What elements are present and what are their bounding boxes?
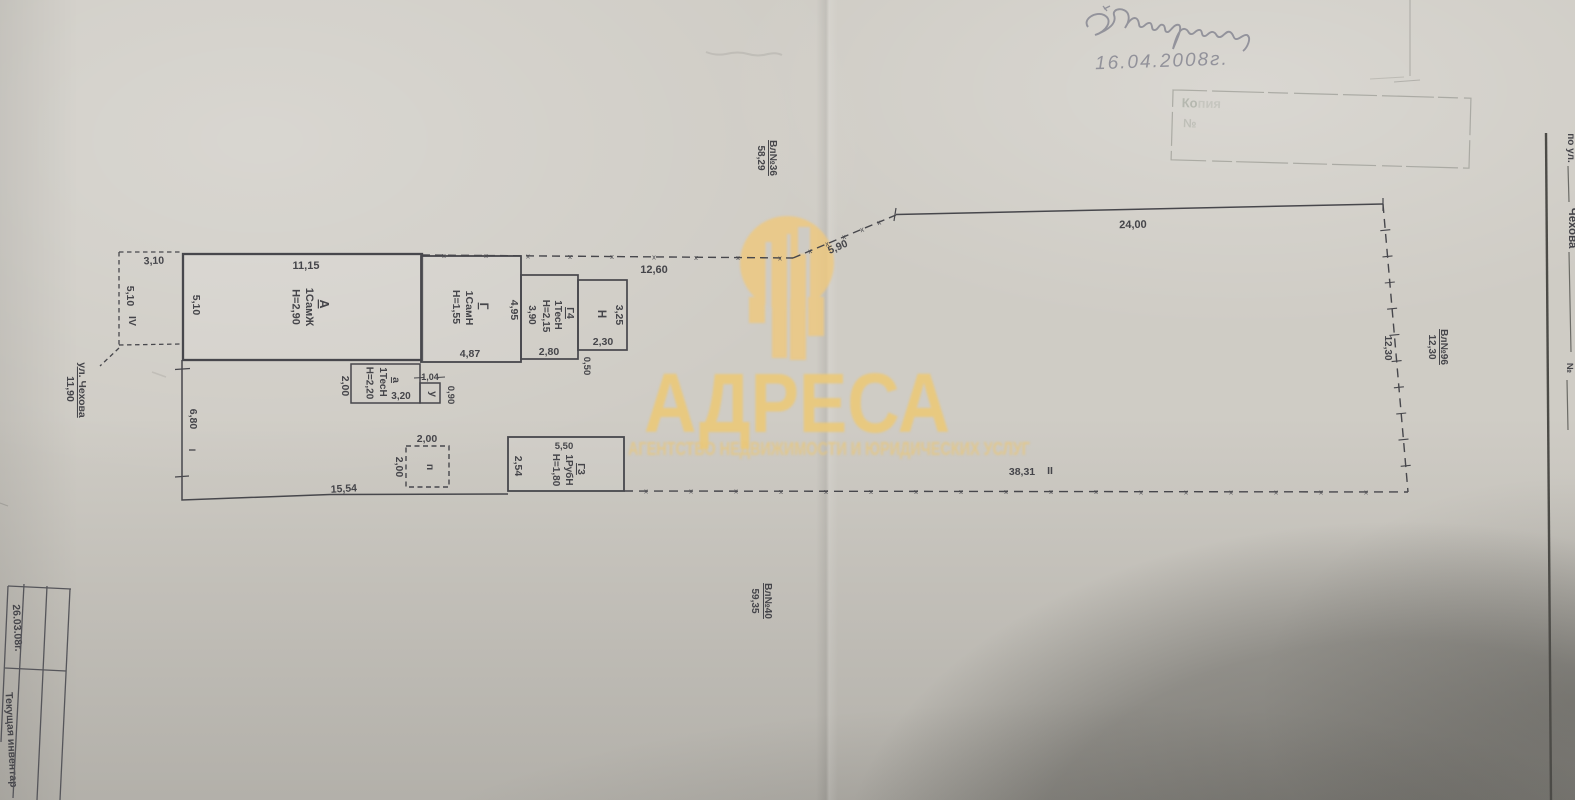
svg-text:15,54: 15,54 — [330, 482, 357, 495]
svg-text:x: x — [1049, 487, 1053, 496]
svg-text:x: x — [644, 487, 648, 496]
svg-text:38,31: 38,31 — [1009, 466, 1035, 478]
svg-text:x: x — [1229, 487, 1233, 496]
svg-text:12,60: 12,60 — [640, 264, 668, 276]
svg-text:№: № — [1183, 116, 1197, 130]
svg-text:Н=2,15: Н=2,15 — [540, 300, 551, 333]
svg-text:ул. Чехова: ул. Чехова — [76, 362, 88, 418]
svg-text:2,54: 2,54 — [512, 456, 524, 477]
svg-text:по ул.: по ул. — [1565, 133, 1575, 163]
svg-text:x: x — [689, 487, 693, 496]
svg-text:Н=2,90: Н=2,90 — [290, 289, 302, 325]
svg-text:x: x — [876, 217, 882, 227]
svg-text:5,50: 5,50 — [555, 441, 574, 452]
svg-text:2,30: 2,30 — [593, 336, 614, 348]
svg-text:2,80: 2,80 — [539, 346, 560, 358]
svg-text:А: А — [317, 299, 331, 308]
svg-text:11,15: 11,15 — [293, 260, 320, 272]
svg-text:1СамЖ: 1СамЖ — [303, 288, 315, 326]
svg-text:x: x — [778, 254, 782, 263]
svg-text:x: x — [652, 253, 656, 262]
svg-text:x: x — [526, 252, 530, 261]
svg-text:1РубН: 1РубН — [563, 454, 575, 485]
svg-text:x: x — [1094, 487, 1098, 496]
svg-text:Вл№96: Вл№96 — [1438, 329, 1449, 365]
svg-text:59,35: 59,35 — [749, 588, 760, 613]
svg-text:Н=1,55: Н=1,55 — [450, 290, 462, 324]
svg-text:11,90: 11,90 — [64, 376, 76, 402]
svg-text:4,87: 4,87 — [460, 348, 481, 360]
svg-text:x: x — [610, 252, 614, 261]
svg-text:1ТесН: 1ТесН — [377, 367, 388, 396]
svg-text:АГЕНТСТВО НЕДВИЖИМОСТИ И ЮРИДИ: АГЕНТСТВО НЕДВИЖИМОСТИ И ЮРИДИЧЕСКИХ УСЛ… — [628, 439, 1030, 459]
svg-text:x: x — [1139, 487, 1143, 496]
svg-text:п: п — [424, 464, 436, 470]
svg-text:5,10: 5,10 — [190, 295, 202, 316]
svg-text:Г3: Г3 — [575, 463, 587, 475]
svg-text:Текущая инвентар: Текущая инвентар — [3, 692, 20, 788]
svg-text:3,10: 3,10 — [143, 255, 164, 268]
svg-text:4,95: 4,95 — [508, 300, 520, 321]
svg-text:Н: Н — [595, 310, 607, 318]
svg-text:x: x — [1364, 488, 1368, 497]
svg-text:1СамН: 1СамН — [463, 291, 475, 326]
svg-text:Вл№36: Вл№36 — [767, 140, 778, 176]
svg-text:Г4: Г4 — [564, 307, 576, 319]
svg-text:16.04.2008г.: 16.04.2008г. — [1095, 49, 1229, 75]
svg-text:x: x — [568, 252, 572, 261]
svg-text:x: x — [869, 487, 873, 496]
svg-text:II: II — [1047, 465, 1053, 477]
svg-text:3,90: 3,90 — [526, 305, 537, 325]
svg-text:Вл№40: Вл№40 — [762, 583, 773, 619]
svg-text:1ТесН: 1ТесН — [552, 300, 563, 329]
svg-text:0,50: 0,50 — [581, 357, 592, 376]
svg-text:x: x — [914, 487, 918, 496]
svg-text:x: x — [824, 487, 828, 496]
svg-text:x: x — [484, 251, 488, 260]
svg-text:3,25: 3,25 — [613, 305, 625, 326]
svg-text:6,80: 6,80 — [187, 409, 199, 430]
svg-text:x: x — [736, 253, 740, 262]
svg-text:I: I — [187, 449, 197, 452]
svg-text:Копия: Копия — [1182, 95, 1222, 111]
svg-text:Н=2,20: Н=2,20 — [364, 367, 375, 400]
svg-text:а: а — [390, 377, 402, 383]
svg-text:5,10: 5,10 — [124, 286, 136, 307]
svg-text:2,00: 2,00 — [393, 457, 405, 478]
svg-text:12,30: 12,30 — [1382, 335, 1393, 360]
svg-text:x: x — [442, 251, 446, 260]
svg-text:2,00: 2,00 — [417, 433, 438, 445]
svg-text:x: x — [779, 487, 783, 496]
svg-text:у: у — [427, 391, 439, 397]
svg-text:3,20: 3,20 — [391, 391, 411, 402]
svg-text:x: x — [1184, 487, 1188, 496]
svg-text:x: x — [1319, 488, 1323, 497]
svg-text:24,00: 24,00 — [1119, 219, 1147, 231]
svg-text:Чехова: Чехова — [1566, 208, 1575, 249]
svg-text:IV: IV — [126, 316, 138, 326]
svg-text:x: x — [959, 487, 963, 496]
svg-text:x: x — [694, 253, 698, 262]
svg-text:x: x — [859, 225, 865, 235]
svg-text:1,04: 1,04 — [421, 372, 439, 382]
svg-text:x: x — [734, 487, 738, 496]
svg-text:58,29: 58,29 — [755, 145, 766, 170]
svg-text:Г: Г — [477, 303, 491, 310]
svg-text:0,90: 0,90 — [445, 386, 456, 405]
svg-text:№: № — [1565, 363, 1575, 373]
svg-text:АДРЕСА: АДРЕСА — [644, 356, 950, 450]
svg-text:12,30: 12,30 — [1426, 334, 1437, 359]
svg-text:x: x — [1004, 487, 1008, 496]
svg-text:2,00: 2,00 — [339, 376, 351, 397]
svg-text:x: x — [1274, 487, 1278, 496]
svg-text:Н=1,80: Н=1,80 — [550, 454, 561, 487]
